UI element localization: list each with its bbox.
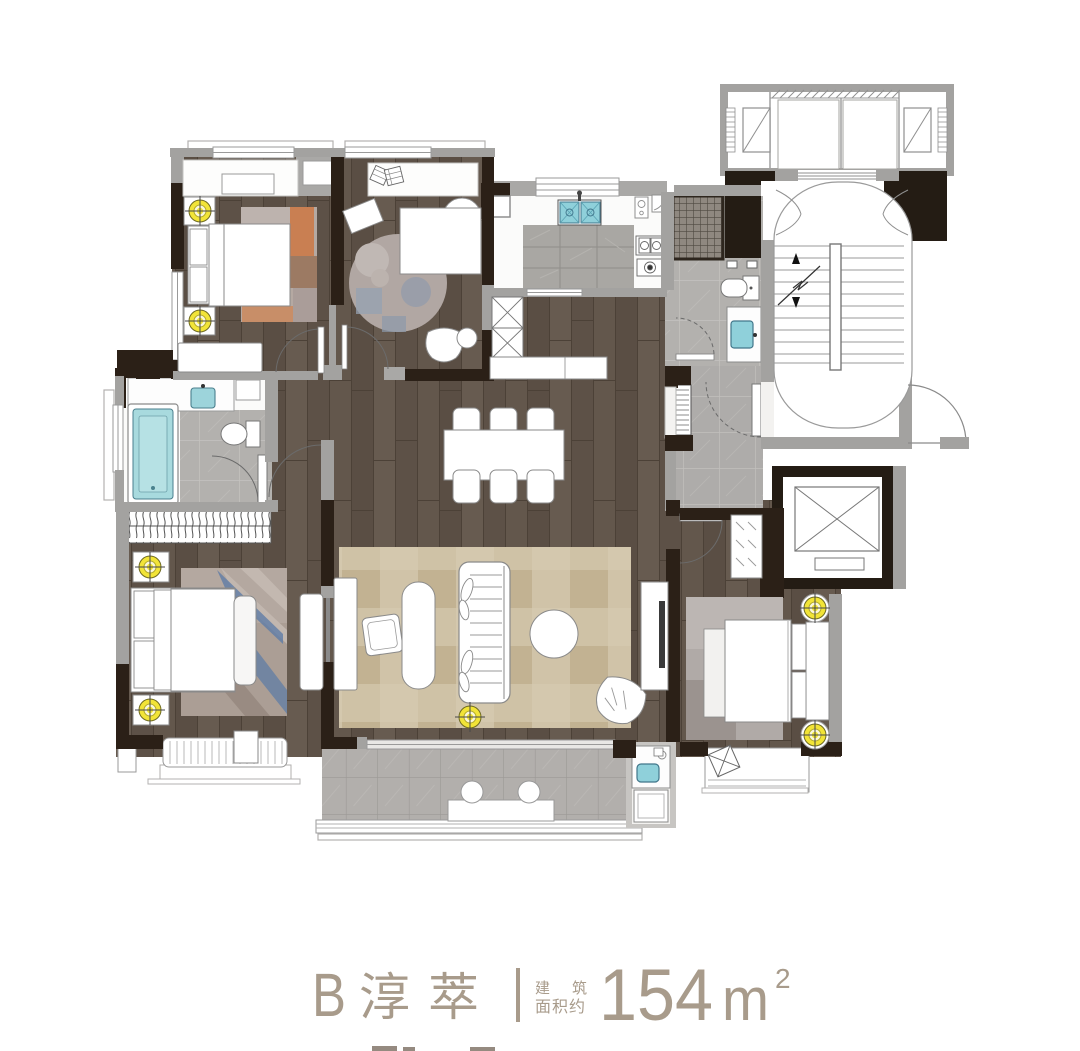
svg-text:2: 2 bbox=[775, 963, 791, 994]
svg-text:B: B bbox=[312, 961, 346, 1029]
svg-text:154: 154 bbox=[599, 955, 713, 1036]
svg-text:淳: 淳 bbox=[359, 969, 410, 1026]
svg-text:建筑: 建筑 bbox=[535, 980, 609, 997]
svg-text:萃: 萃 bbox=[428, 969, 479, 1026]
svg-text:面积约: 面积约 bbox=[535, 998, 586, 1016]
svg-text:m: m bbox=[722, 966, 769, 1033]
